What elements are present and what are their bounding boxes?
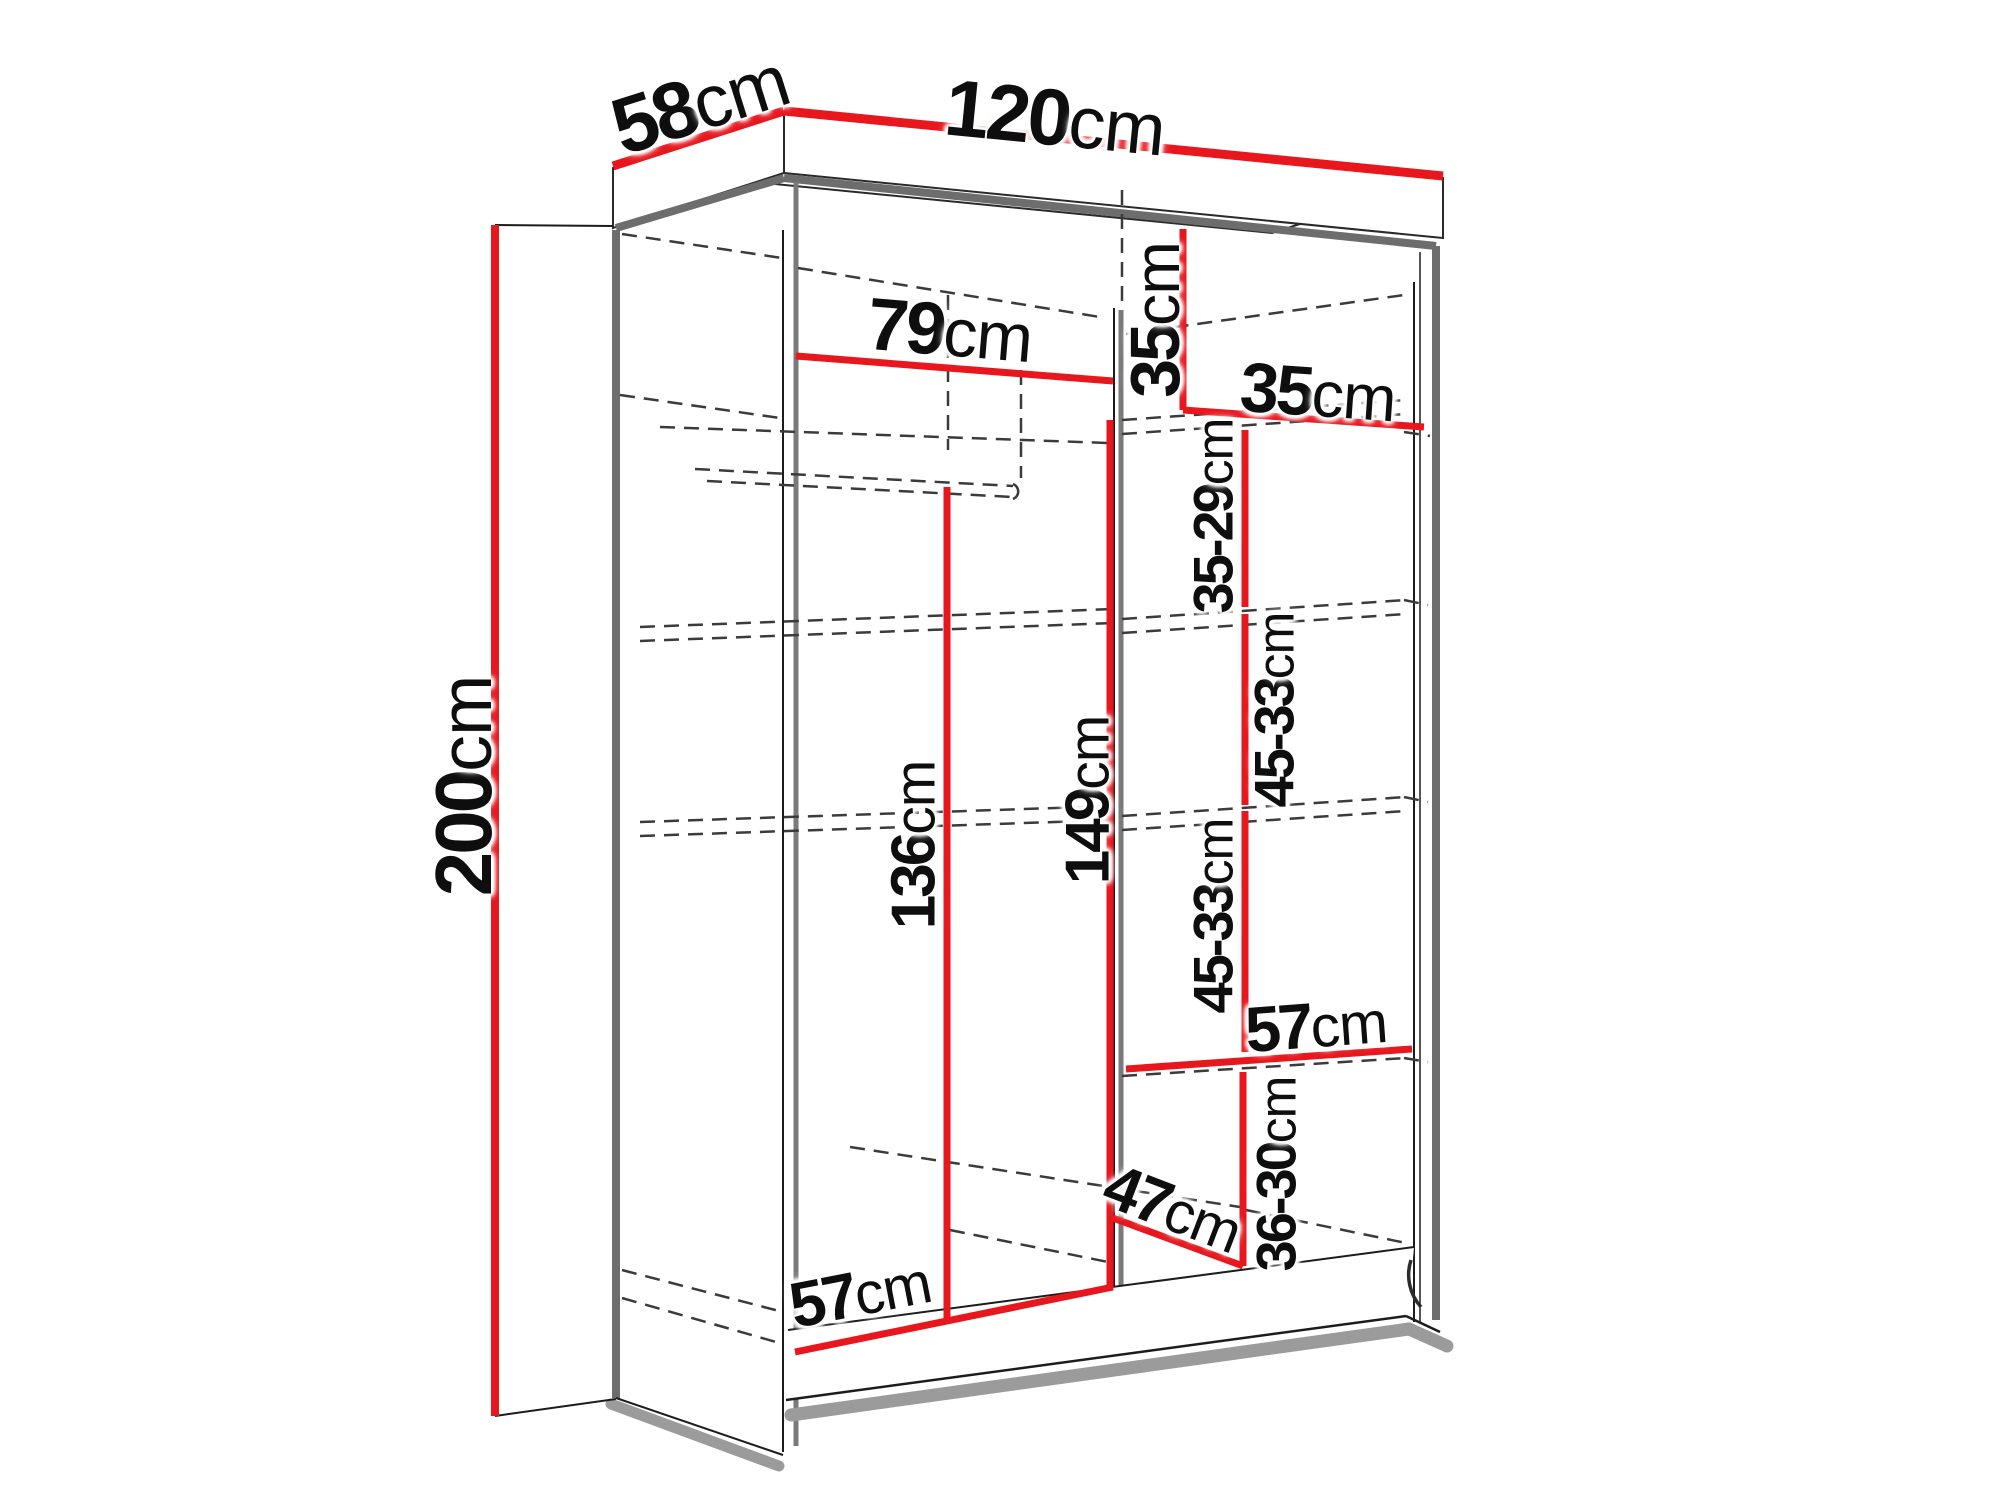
shelf2-left-dash-a <box>640 609 1113 627</box>
dim-label-partition-height: 149cm <box>1053 716 1124 884</box>
dim-value-height: 200 <box>419 772 508 896</box>
top-back-dash-left <box>622 234 782 258</box>
dim-unit-partition-height: cm <box>1058 716 1122 790</box>
dim-label-shelf-gap-1: 35-29cm <box>1181 419 1246 614</box>
dim-value-hanging-height: 136 <box>880 835 949 929</box>
dim-label-hanging-height: 136cm <box>879 761 950 929</box>
left-side-bottom-edge <box>616 1398 783 1455</box>
corner-shadow <box>1409 1329 1447 1346</box>
floor-left-dash-b <box>622 1298 783 1344</box>
shelf2-left-dash-b <box>640 623 1113 641</box>
dim-label-right-shelf-width: 57cm <box>1243 983 1390 1067</box>
dim-label-shelf-gap-3: 45-33cm <box>1181 819 1246 1014</box>
wardrobe-diagram: 58cm 120cm 200cm 79cm 35cm 35cm 35-29cm … <box>0 0 2000 1500</box>
dim-value-shelf-gap-4: 36-30 <box>1245 1143 1308 1271</box>
dim-value-shelf-gap-2: 45-33 <box>1243 679 1306 807</box>
shelf3-front-edge <box>1122 811 1406 830</box>
shelf3-left-dash-a <box>640 806 1113 822</box>
dim-value-shelf-gap-3: 45-33 <box>1182 885 1245 1013</box>
dim-unit-height: cm <box>424 676 507 772</box>
shelf1-wall-mark <box>1404 432 1430 436</box>
dim-unit-shelf-gap-3: cm <box>1186 819 1244 886</box>
dim-label-top-shelf-height: 35cm <box>1115 242 1195 398</box>
shelf3-left-dash-b <box>640 820 1113 836</box>
dim-label-right-inner-width: 35cm <box>1238 347 1399 438</box>
dim-unit-top-shelf-height: cm <box>1121 242 1193 326</box>
dim-value-left-inner-width: 79 <box>864 282 947 371</box>
dim-unit-left-bottom-width: cm <box>849 1250 936 1328</box>
hanging-rod-end-cap <box>1013 484 1018 499</box>
dim-unit-hanging-height: cm <box>884 761 948 835</box>
dim-unit-right-inner-width: cm <box>1309 358 1398 436</box>
bottom-plinth <box>611 1247 1447 1466</box>
dim-unit-width: cm <box>1065 80 1169 172</box>
shelf4-wall-mark <box>1404 1058 1428 1062</box>
top-shelf-front-dash-a <box>620 395 780 418</box>
dim-value-shelf-gap-1: 35-29 <box>1182 485 1245 613</box>
dim-value-partition-height: 149 <box>1054 790 1123 884</box>
dim-label-shelf-gap-4: 36-30cm <box>1244 1077 1309 1272</box>
dim-unit-left-inner-width: cm <box>940 294 1035 377</box>
shelf2-wall-mark <box>1404 600 1428 605</box>
dim-unit-shelf-gap-1: cm <box>1186 419 1244 486</box>
dimension-connectors <box>495 225 616 1416</box>
height-connector-top <box>495 225 613 226</box>
height-connector-bottom <box>495 1399 616 1416</box>
dim-unit-right-shelf-width: cm <box>1308 990 1389 1060</box>
diagram-drawing <box>0 0 2000 1500</box>
dim-value-right-shelf-width: 57 <box>1243 990 1313 1067</box>
dim-label-left-inner-width: 79cm <box>864 281 1035 379</box>
dim-unit-shelf-gap-2: cm <box>1247 613 1305 680</box>
dim-label-height: 200cm <box>418 676 510 897</box>
shelf3-wall-mark <box>1404 797 1428 802</box>
top-shelf-front-dash-b <box>660 427 1108 443</box>
dim-label-shelf-gap-2: 45-33cm <box>1242 613 1307 808</box>
dim-unit-shelf-gap-4: cm <box>1249 1077 1307 1144</box>
dim-value-width: 120 <box>941 62 1074 163</box>
dim-value-top-shelf-height: 35 <box>1116 326 1194 398</box>
dim-value-right-inner-width: 35 <box>1238 348 1315 431</box>
left-bottom-shadow <box>611 1404 779 1466</box>
floor-front-dash-b <box>950 1230 1108 1262</box>
